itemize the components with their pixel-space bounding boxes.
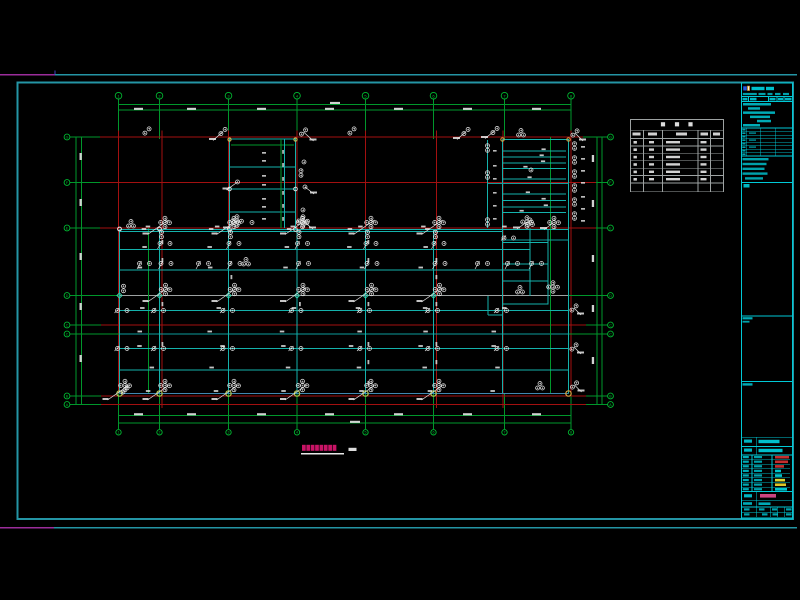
svg-text:4: 4 bbox=[296, 431, 298, 435]
svg-text:D: D bbox=[66, 294, 69, 298]
svg-text:7: 7 bbox=[504, 431, 506, 435]
svg-text:G: G bbox=[66, 135, 69, 139]
svg-text:G: G bbox=[609, 135, 612, 139]
svg-text:3: 3 bbox=[228, 431, 230, 435]
svg-text:C: C bbox=[66, 323, 69, 327]
svg-text:C: C bbox=[609, 332, 612, 336]
svg-text:C: C bbox=[609, 323, 612, 327]
svg-text:C: C bbox=[66, 332, 69, 336]
svg-text:6: 6 bbox=[433, 431, 435, 435]
svg-text:1: 1 bbox=[118, 431, 120, 435]
svg-text:5: 5 bbox=[365, 431, 367, 435]
svg-text:2: 2 bbox=[159, 431, 161, 435]
svg-text:8: 8 bbox=[570, 431, 572, 435]
svg-text:D: D bbox=[609, 294, 612, 298]
